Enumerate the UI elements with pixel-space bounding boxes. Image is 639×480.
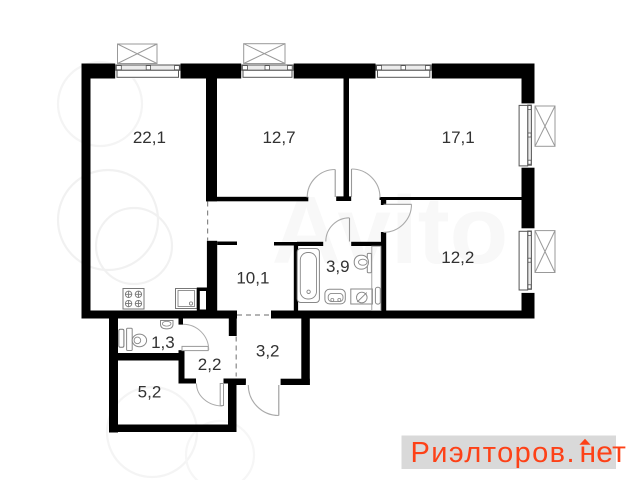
svg-text:2,2: 2,2 (198, 355, 222, 374)
svg-text:10,1: 10,1 (236, 269, 269, 288)
svg-text:Риэлторов.: Риэлторов. (411, 437, 576, 469)
svg-text:17,1: 17,1 (442, 128, 475, 147)
svg-text:1,3: 1,3 (151, 333, 175, 352)
svg-text:3,9: 3,9 (326, 257, 350, 276)
svg-text:12,7: 12,7 (262, 128, 295, 147)
svg-text:22,1: 22,1 (133, 128, 166, 147)
svg-text:5,2: 5,2 (138, 383, 162, 402)
svg-text:3,2: 3,2 (256, 342, 280, 361)
svg-text:12,2: 12,2 (441, 248, 474, 267)
